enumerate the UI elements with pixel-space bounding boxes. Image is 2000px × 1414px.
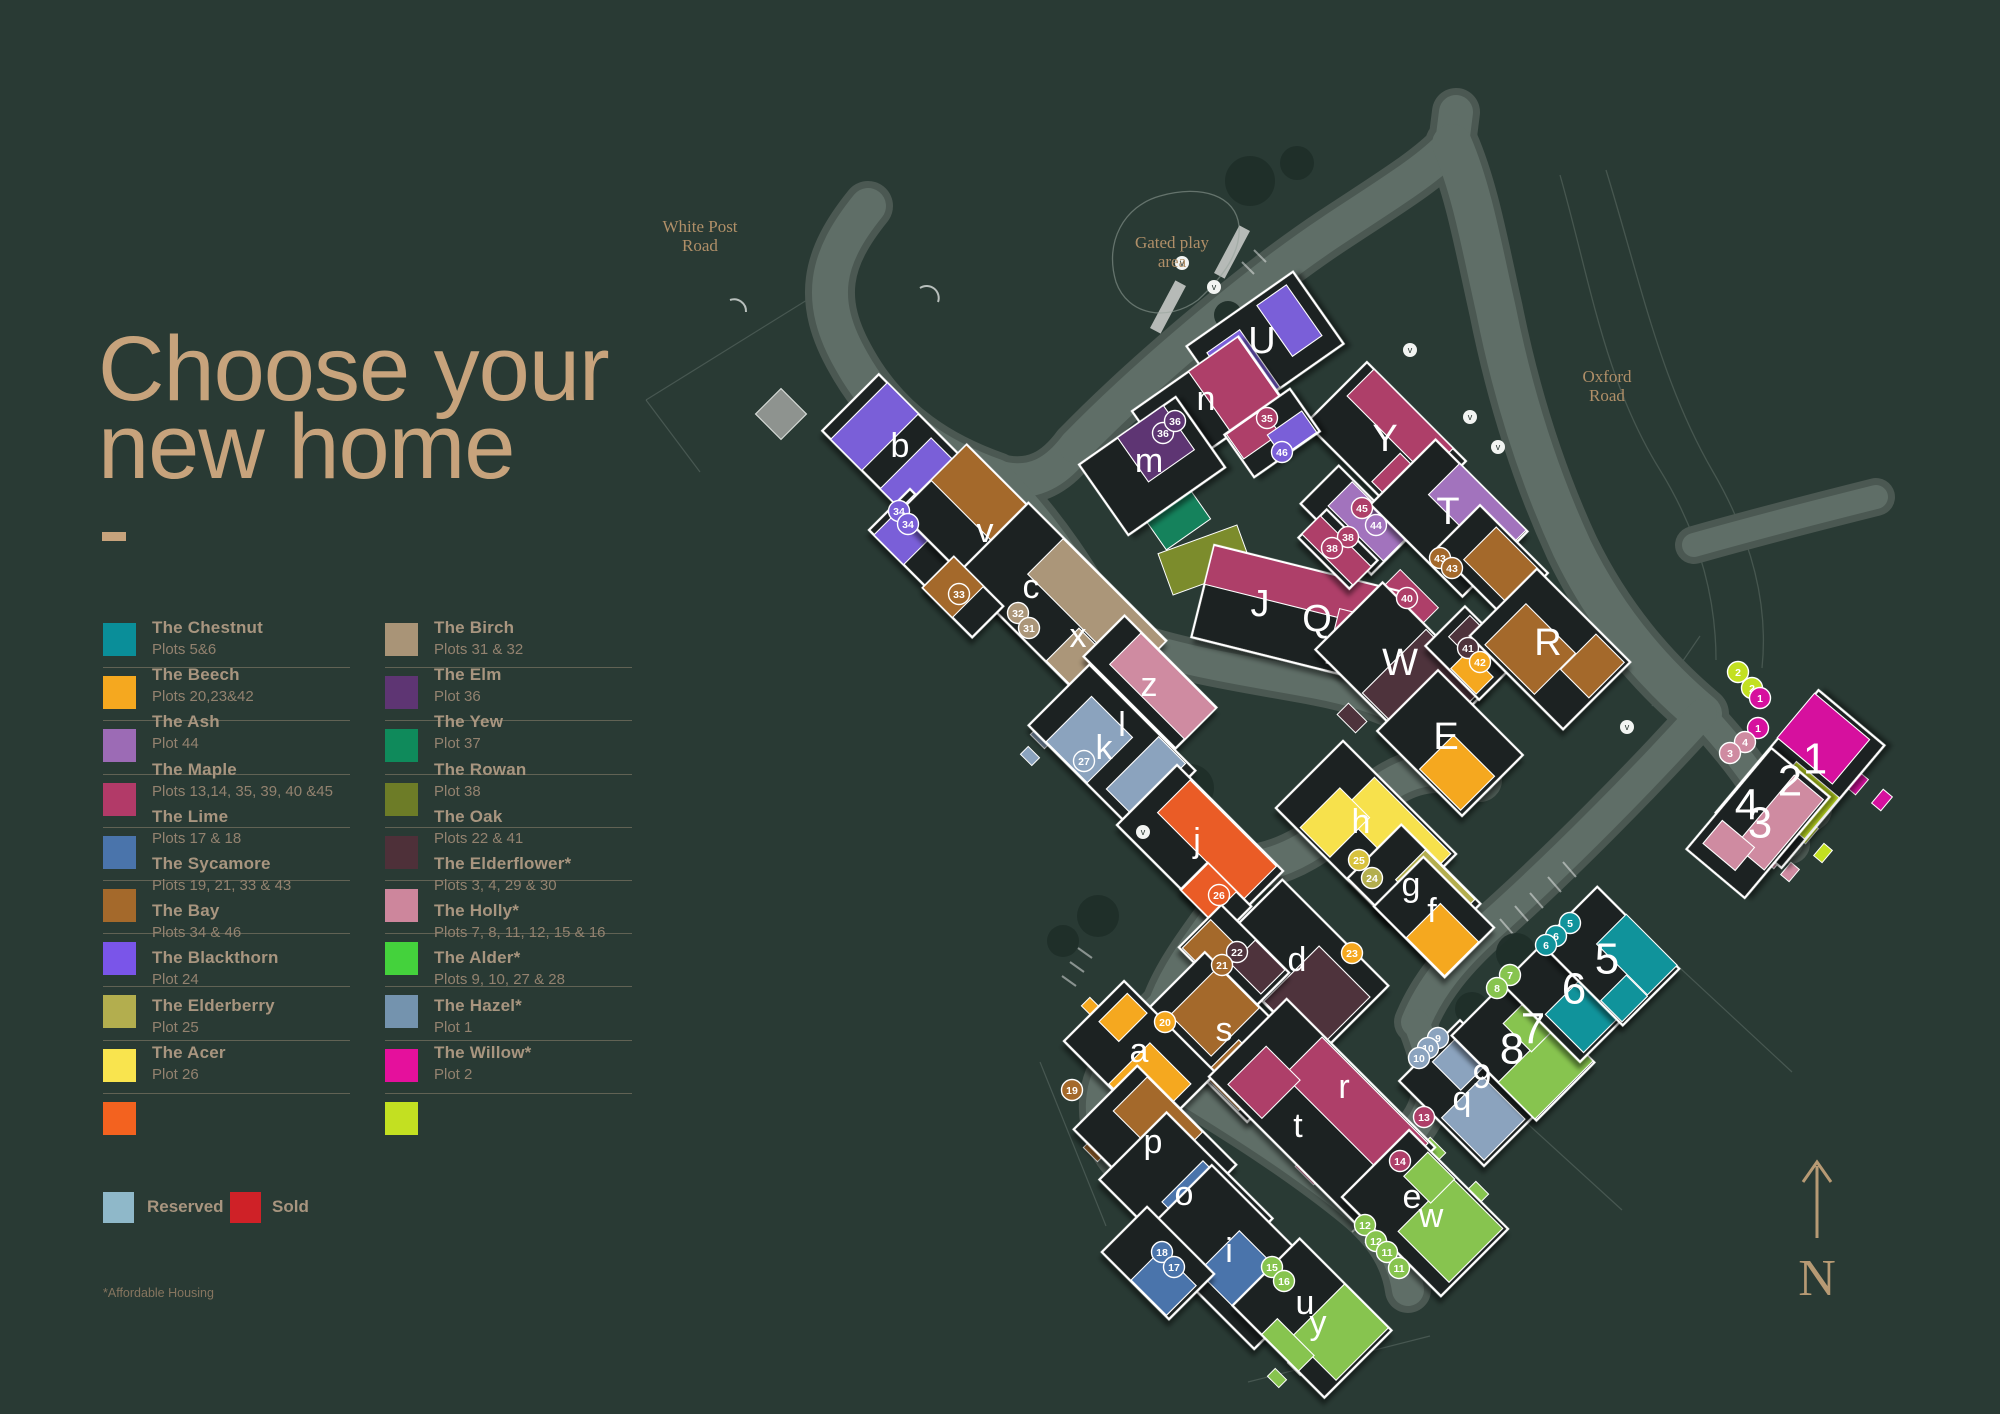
plot-chip: [1872, 789, 1893, 811]
visitor-parking-marker: v: [1463, 410, 1477, 424]
svg-text:8: 8: [1494, 983, 1500, 995]
plot-number-marker[interactable]: 3: [1720, 743, 1741, 764]
svg-text:v: v: [1212, 282, 1217, 292]
svg-text:4: 4: [1742, 737, 1748, 749]
svg-text:43: 43: [1446, 563, 1458, 575]
plot-number-marker[interactable]: 31: [1019, 618, 1040, 639]
plot-letter: h: [1352, 803, 1371, 841]
plot-number-marker[interactable]: 38: [1322, 538, 1343, 559]
plot-letter: q: [1453, 1080, 1472, 1118]
svg-text:v: v: [1408, 345, 1413, 355]
svg-text:23: 23: [1346, 948, 1358, 960]
tree: [1280, 146, 1314, 180]
parking-line: [1078, 948, 1092, 958]
svg-text:v: v: [1496, 442, 1501, 452]
plot-number-marker[interactable]: 10: [1409, 1048, 1430, 1069]
plot-letter: m: [1135, 442, 1163, 480]
plot-letter: x: [1070, 617, 1087, 655]
plot-letter: n: [1197, 380, 1216, 418]
plot-number-marker[interactable]: 8: [1487, 978, 1508, 999]
svg-text:11: 11: [1381, 1247, 1392, 1259]
plot-letter: R: [1534, 622, 1561, 664]
svg-text:3: 3: [1727, 748, 1733, 760]
plot-letter: y: [1310, 1304, 1327, 1342]
gate-arc: [730, 299, 746, 312]
svg-text:21: 21: [1216, 960, 1228, 972]
plot-letter: 2: [1778, 757, 1802, 806]
plot-number-marker[interactable]: 40: [1397, 588, 1418, 609]
plot-number-marker[interactable]: 46: [1272, 442, 1293, 463]
boundary-line: [646, 400, 700, 472]
plot-letter: p: [1144, 1123, 1163, 1161]
svg-text:34: 34: [902, 519, 914, 531]
plot-letter: g: [1402, 866, 1421, 904]
svg-text:32: 32: [1012, 608, 1024, 620]
svg-text:44: 44: [1370, 520, 1382, 532]
road-label: Gated playarea: [1135, 233, 1210, 271]
plot-letter: b: [891, 427, 910, 465]
svg-text:13: 13: [1418, 1112, 1430, 1124]
svg-text:v: v: [1468, 412, 1473, 422]
visitor-parking-marker: v: [1491, 440, 1505, 454]
visitor-parking-marker: v: [1207, 280, 1221, 294]
plot-number-marker[interactable]: 44: [1366, 515, 1387, 536]
plot-number-marker[interactable]: 16: [1274, 1271, 1295, 1292]
plot-letter: t: [1293, 1107, 1303, 1145]
plot-letter: k: [1096, 729, 1114, 767]
plot-letter: 9: [1473, 1058, 1492, 1096]
substation: [756, 389, 807, 440]
svg-text:20: 20: [1159, 1017, 1171, 1029]
plot-letter: U: [1248, 320, 1275, 362]
plot-letter: Y: [1372, 418, 1397, 460]
plot-letter: l: [1118, 706, 1126, 744]
compass-letter: N: [1798, 1250, 1836, 1307]
plot-letter: o: [1175, 1175, 1194, 1213]
plot-chip: [1267, 1368, 1286, 1387]
svg-text:25: 25: [1353, 855, 1365, 867]
svg-text:41: 41: [1462, 643, 1474, 655]
plot-number-marker[interactable]: 45: [1352, 498, 1373, 519]
plot-number-marker[interactable]: 21: [1212, 955, 1233, 976]
plot-chip: [1814, 843, 1833, 862]
road-label: OxfordRoad: [1582, 367, 1632, 405]
svg-text:14: 14: [1394, 1156, 1406, 1168]
svg-text:42: 42: [1474, 657, 1486, 669]
plot-letter: s: [1216, 1011, 1233, 1049]
svg-text:6: 6: [1543, 940, 1549, 952]
plot-number-marker[interactable]: 33: [949, 584, 970, 605]
tree: [1047, 925, 1079, 957]
plot-letter: v: [977, 512, 994, 550]
plot-letter: 6: [1562, 965, 1586, 1014]
tree: [1077, 895, 1119, 937]
svg-text:10: 10: [1413, 1053, 1425, 1065]
plot-number-marker[interactable]: 24: [1362, 868, 1383, 889]
svg-text:v: v: [1141, 827, 1146, 837]
svg-text:16: 16: [1278, 1276, 1290, 1288]
svg-text:35: 35: [1261, 413, 1273, 425]
plot-number-marker[interactable]: 23: [1342, 943, 1363, 964]
site-plan-map: bvcxzlkmnUYTJQWREhgfjdsapoitrq9ewuy56781…: [0, 0, 2000, 1414]
plot-number-marker[interactable]: 1: [1750, 688, 1771, 709]
plot-number-marker[interactable]: 11: [1389, 1258, 1410, 1279]
svg-text:17: 17: [1168, 1262, 1180, 1274]
plot-letter: a: [1130, 1032, 1149, 1070]
svg-text:31: 31: [1023, 623, 1035, 635]
plot-number-marker[interactable]: 19: [1062, 1080, 1083, 1101]
plot-number-marker[interactable]: 34: [898, 514, 919, 535]
svg-text:27: 27: [1078, 756, 1090, 768]
svg-text:v: v: [1625, 722, 1630, 732]
plot-number-marker[interactable]: 13: [1414, 1107, 1435, 1128]
north-compass: N: [1798, 1162, 1836, 1307]
plot-letter: Q: [1302, 598, 1332, 640]
plot-letter: 1: [1803, 735, 1827, 784]
plot-number-marker[interactable]: 36: [1165, 411, 1186, 432]
substation: [756, 389, 807, 440]
svg-text:36: 36: [1157, 428, 1169, 440]
svg-text:40: 40: [1401, 593, 1413, 605]
plot-letter: 8: [1500, 1025, 1524, 1074]
svg-text:1: 1: [1755, 723, 1761, 735]
svg-text:24: 24: [1366, 873, 1378, 885]
road-label: White PostRoad: [662, 217, 737, 255]
plot-letter: j: [1192, 822, 1201, 860]
visitor-parking-marker: v: [1403, 343, 1417, 357]
plot-letter: w: [1418, 1197, 1444, 1235]
plot-number-marker[interactable]: 17: [1164, 1257, 1185, 1278]
plot-number-marker[interactable]: 20: [1155, 1012, 1176, 1033]
gate-arc: [920, 286, 939, 302]
plot-chip: [1020, 746, 1039, 765]
plot-letter: 4: [1735, 781, 1759, 830]
svg-text:33: 33: [953, 589, 965, 601]
visitor-parking-marker: v: [1136, 825, 1150, 839]
svg-text:36: 36: [1169, 416, 1181, 428]
parking-line: [1070, 962, 1084, 972]
svg-text:12: 12: [1359, 1220, 1371, 1232]
verge-line: [1606, 170, 1763, 668]
plot-letter: f: [1427, 892, 1437, 930]
plot-number-marker[interactable]: 35: [1257, 408, 1278, 429]
plot-letter: z: [1141, 666, 1158, 704]
svg-text:22: 22: [1231, 947, 1243, 959]
svg-text:18: 18: [1156, 1247, 1168, 1259]
svg-text:5: 5: [1567, 918, 1573, 930]
svg-text:1: 1: [1757, 693, 1763, 705]
svg-text:11: 11: [1393, 1263, 1404, 1275]
tree: [1225, 156, 1275, 206]
plot-letter: r: [1338, 1068, 1349, 1106]
plot-number-marker[interactable]: 42: [1470, 652, 1491, 673]
plot-number-marker[interactable]: 26: [1209, 885, 1230, 906]
plot-letter: d: [1288, 941, 1307, 979]
svg-text:2: 2: [1735, 667, 1741, 679]
svg-text:7: 7: [1507, 970, 1513, 982]
plot-number-marker[interactable]: 43: [1442, 558, 1463, 579]
visitor-parking-marker: v: [1620, 720, 1634, 734]
svg-text:38: 38: [1342, 532, 1354, 544]
plot-number-marker[interactable]: 14: [1390, 1151, 1411, 1172]
plot-letter: c: [1023, 568, 1040, 606]
plot-letter: W: [1382, 642, 1418, 684]
svg-text:46: 46: [1276, 447, 1288, 459]
plot-number-marker[interactable]: 6: [1536, 935, 1557, 956]
plot-number-marker[interactable]: 27: [1074, 751, 1095, 772]
parking-line: [1062, 976, 1076, 986]
svg-text:45: 45: [1356, 503, 1368, 515]
plot-letter: 5: [1595, 935, 1619, 984]
plot-letter: E: [1433, 716, 1458, 758]
plot-letter: i: [1225, 1232, 1233, 1270]
svg-text:26: 26: [1213, 890, 1225, 902]
plot-number-marker[interactable]: 25: [1349, 850, 1370, 871]
svg-text:38: 38: [1326, 543, 1338, 555]
svg-text:15: 15: [1266, 1262, 1278, 1274]
plot-letter: 7: [1521, 1005, 1545, 1054]
plot-letter: J: [1251, 583, 1270, 625]
svg-text:19: 19: [1066, 1085, 1078, 1097]
plot-letter: T: [1436, 491, 1459, 533]
